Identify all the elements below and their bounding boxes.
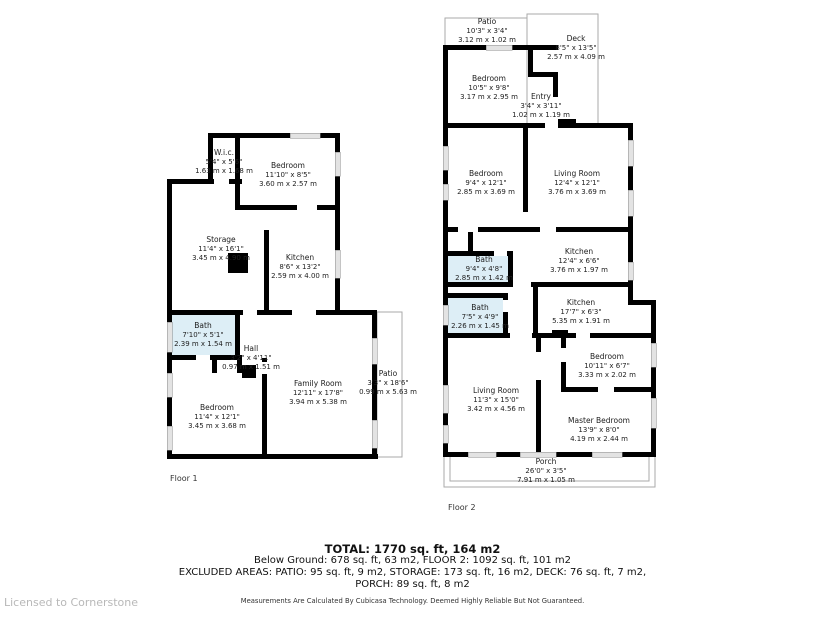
room-dim-metric: 0.99 m x 5.63 m <box>359 388 417 398</box>
room-dim-imperial: 3'3" x 18'6" <box>359 378 417 388</box>
room-name: Master Bedroom <box>568 416 630 426</box>
room-dim-imperial: 10'5" x 9'8" <box>460 83 518 93</box>
room-name: Kitchen <box>550 247 608 257</box>
floor2-label: Floor 2 <box>448 503 476 512</box>
room-label-f1-wic: W.i.c. 5'4" x 5'6" 1.63 m x 1.68 m <box>195 148 253 177</box>
room-name: Living Room <box>548 169 606 179</box>
room-dim-metric: 4.19 m x 2.44 m <box>568 435 630 445</box>
room-dim-metric: 2.26 m x 1.45 m <box>451 322 509 332</box>
room-dim-imperial: 13'9" x 8'0" <box>568 425 630 435</box>
room-dim-metric: 3.42 m x 4.56 m <box>467 405 525 415</box>
room-dim-imperial: 11'10" x 8'5" <box>259 170 317 180</box>
summary-excluded: EXCLUDED AREAS: PATIO: 95 sq. ft, 9 m2, … <box>0 567 825 579</box>
room-dim-imperial: 12'11" x 17'8" <box>289 388 347 398</box>
room-name: Living Room <box>467 386 525 396</box>
room-dim-metric: 3.17 m x 2.95 m <box>460 93 518 103</box>
room-label-f2-kitchen-upper: Kitchen 12'4" x 6'6" 3.76 m x 1.97 m <box>550 247 608 276</box>
room-label-f2-bedroom-mid: Bedroom 9'4" x 12'1" 2.85 m x 3.69 m <box>457 169 515 198</box>
room-dim-metric: 3.33 m x 2.02 m <box>578 371 636 381</box>
floorplan-drawing <box>0 0 825 619</box>
entry-door-icon <box>558 119 576 128</box>
room-label-f1-bedroom-bottom: Bedroom 11'4" x 12'1" 3.45 m x 3.68 m <box>188 403 246 432</box>
room-name: Bedroom <box>460 74 518 84</box>
room-dim-imperial: 9'4" x 12'1" <box>457 178 515 188</box>
room-name: Kitchen <box>552 298 610 308</box>
floor1-label: Floor 1 <box>170 474 198 483</box>
room-label-f2-bath-lower: Bath 7'5" x 4'9" 2.26 m x 1.45 m <box>451 303 509 332</box>
room-label-f2-entry: Entry 3'4" x 3'11" 1.02 m x 1.19 m <box>512 92 570 121</box>
room-dim-metric: 3.45 m x 4.90 m <box>192 254 250 264</box>
summary-porch: PORCH: 89 sq. ft, 8 m2 <box>0 579 825 591</box>
room-name: Patio <box>359 369 417 379</box>
room-dim-metric: 2.59 m x 4.00 m <box>271 272 329 282</box>
room-label-f1-patio: Patio 3'3" x 18'6" 0.99 m x 5.63 m <box>359 369 417 398</box>
room-dim-metric: 3.76 m x 1.97 m <box>550 266 608 276</box>
room-dim-imperial: 5'4" x 5'6" <box>195 157 253 167</box>
room-dim-imperial: 12'4" x 6'6" <box>550 256 608 266</box>
room-label-f2-living-room-bottom: Living Room 11'3" x 15'0" 3.42 m x 4.56 … <box>467 386 525 415</box>
room-dim-metric: 2.85 m x 1.42 m <box>455 274 513 284</box>
room-dim-metric: 0.97 m x 1.51 m <box>222 363 280 373</box>
room-dim-imperial: 7'5" x 4'9" <box>451 312 509 322</box>
room-label-f2-master-bedroom: Master Bedroom 13'9" x 8'0" 4.19 m x 2.4… <box>568 416 630 445</box>
room-dim-metric: 3.94 m x 5.38 m <box>289 398 347 408</box>
room-dim-imperial: 26'0" x 3'5" <box>517 466 575 476</box>
room-dim-imperial: 12'4" x 12'1" <box>548 178 606 188</box>
room-label-f1-bedroom-top: Bedroom 11'10" x 8'5" 3.60 m x 2.57 m <box>259 161 317 190</box>
room-name: Bath <box>451 303 509 313</box>
room-dim-imperial: 10'3" x 3'4" <box>458 26 516 36</box>
room-dim-imperial: 11'3" x 15'0" <box>467 395 525 405</box>
room-name: Patio <box>458 17 516 27</box>
room-name: Bedroom <box>578 352 636 362</box>
room-label-f1-storage: Storage 11'4" x 16'1" 3.45 m x 4.90 m <box>192 235 250 264</box>
room-dim-imperial: 3'2" x 4'11" <box>222 353 280 363</box>
room-dim-imperial: 11'4" x 12'1" <box>188 412 246 422</box>
bedroom-door-icon <box>552 330 568 338</box>
room-name: W.i.c. <box>195 148 253 158</box>
room-name: Bedroom <box>259 161 317 171</box>
room-dim-metric: 2.57 m x 4.09 m <box>547 53 605 63</box>
room-dim-imperial: 17'7" x 6'3" <box>552 307 610 317</box>
room-label-f1-kitchen: Kitchen 8'6" x 13'2" 2.59 m x 4.00 m <box>271 253 329 282</box>
floorplan-page: W.i.c. 5'4" x 5'6" 1.63 m x 1.68 m Bedro… <box>0 0 825 619</box>
room-dim-metric: 3.76 m x 3.69 m <box>548 188 606 198</box>
summary-total: TOTAL: 1770 sq. ft, 164 m2 <box>0 543 825 555</box>
room-name: Entry <box>512 92 570 102</box>
room-name: Hall <box>222 344 280 354</box>
room-dim-metric: 1.63 m x 1.68 m <box>195 167 253 177</box>
room-label-f2-living-room-mid: Living Room 12'4" x 12'1" 3.76 m x 3.69 … <box>548 169 606 198</box>
room-dim-metric: 3.60 m x 2.57 m <box>259 180 317 190</box>
room-name: Porch <box>517 457 575 467</box>
room-name: Bedroom <box>188 403 246 413</box>
room-name: Family Room <box>289 379 347 389</box>
room-label-f2-bedroom-small: Bedroom 10'11" x 6'7" 3.33 m x 2.02 m <box>578 352 636 381</box>
room-label-f2-bath-upper: Bath 9'4" x 4'8" 2.85 m x 1.42 m <box>455 255 513 284</box>
room-label-f2-bedroom-top: Bedroom 10'5" x 9'8" 3.17 m x 2.95 m <box>460 74 518 103</box>
room-dim-imperial: 8'5" x 13'5" <box>547 43 605 53</box>
room-label-f1-hall: Hall 3'2" x 4'11" 0.97 m x 1.51 m <box>222 344 280 373</box>
room-label-f2-porch: Porch 26'0" x 3'5" 7.91 m x 1.05 m <box>517 457 575 486</box>
room-label-f2-kitchen-lower: Kitchen 17'7" x 6'3" 5.35 m x 1.91 m <box>552 298 610 327</box>
room-name: Bath <box>174 321 232 331</box>
room-name: Bedroom <box>457 169 515 179</box>
room-dim-metric: 2.85 m x 3.69 m <box>457 188 515 198</box>
room-label-f1-family-room: Family Room 12'11" x 17'8" 3.94 m x 5.38… <box>289 379 347 408</box>
room-dim-metric: 5.35 m x 1.91 m <box>552 317 610 327</box>
room-name: Kitchen <box>271 253 329 263</box>
room-name: Deck <box>547 34 605 44</box>
room-dim-imperial: 8'6" x 13'2" <box>271 262 329 272</box>
room-dim-imperial: 7'10" x 5'1" <box>174 330 232 340</box>
summary-floors: Below Ground: 678 sq. ft, 63 m2, FLOOR 2… <box>0 555 825 567</box>
room-dim-imperial: 10'11" x 6'7" <box>578 361 636 371</box>
room-name: Storage <box>192 235 250 245</box>
room-dim-imperial: 3'4" x 3'11" <box>512 101 570 111</box>
room-dim-metric: 3.12 m x 1.02 m <box>458 36 516 46</box>
license-text: Licensed to Cornerstone <box>4 596 138 609</box>
room-dim-imperial: 9'4" x 4'8" <box>455 264 513 274</box>
room-dim-imperial: 11'4" x 16'1" <box>192 244 250 254</box>
room-dim-metric: 3.45 m x 3.68 m <box>188 422 246 432</box>
room-dim-metric: 7.91 m x 1.05 m <box>517 476 575 486</box>
room-label-f2-deck: Deck 8'5" x 13'5" 2.57 m x 4.09 m <box>547 34 605 63</box>
room-name: Bath <box>455 255 513 265</box>
room-dim-metric: 1.02 m x 1.19 m <box>512 111 570 121</box>
room-label-f2-patio: Patio 10'3" x 3'4" 3.12 m x 1.02 m <box>458 17 516 46</box>
